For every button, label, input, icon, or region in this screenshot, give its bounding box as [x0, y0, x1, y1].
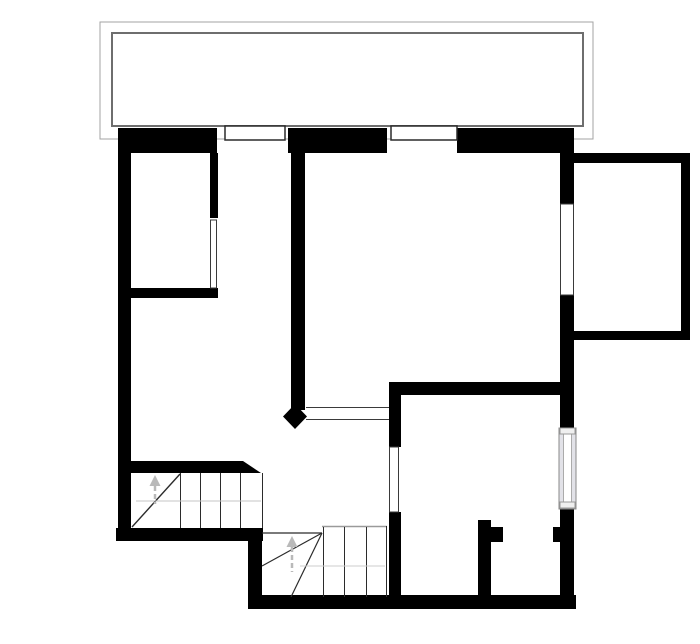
north-wall-east-segment [457, 128, 574, 153]
closet-door-jamb-west [491, 527, 503, 542]
bedroom-partition-vertical [210, 153, 218, 218]
bay-north-wall [574, 153, 690, 163]
north-window-mid-frame [391, 126, 457, 140]
stair2-up-arrow-head [287, 536, 298, 547]
stair-north-wall [118, 461, 243, 473]
backroom-north-wall [389, 382, 560, 395]
closet-door-jamb-east [553, 527, 562, 542]
east-window-lower-cap-bottom [560, 502, 575, 508]
east-window-upper [561, 204, 574, 295]
bay-east-wall [681, 153, 690, 340]
balcony-inner-outline [112, 33, 583, 126]
backroom-west-wall-lower [389, 512, 401, 602]
bedroom-partition-horizontal [118, 288, 218, 298]
central-partition-wall [291, 140, 305, 410]
stair1-up-arrow-head [150, 475, 161, 486]
stair-north-wall-chamfer [243, 461, 261, 473]
east-wall-lower [560, 509, 574, 609]
south-step-wall [248, 528, 262, 609]
bedroom-door-opening [211, 220, 217, 288]
west-wall [118, 128, 131, 541]
floor-plan-svg [0, 0, 700, 644]
closet-partition-wall [478, 520, 491, 603]
south-wall [248, 595, 576, 609]
balcony-outer-outline [100, 22, 593, 139]
stair2-winder-diagonal-2 [291, 533, 322, 597]
backroom-door-opening [390, 447, 399, 512]
north-window-west-frame [225, 126, 285, 140]
east-window-lower-glass [564, 434, 572, 503]
north-wall-west-segment [118, 128, 217, 153]
backroom-west-wall-upper [389, 382, 401, 447]
bay-south-wall [574, 331, 690, 340]
east-window-lower-cap-top [560, 428, 575, 434]
floor-plan-page [0, 0, 700, 644]
stair-south-wall [116, 528, 263, 541]
east-wall-upper [560, 128, 574, 204]
east-wall-mid [560, 295, 574, 429]
